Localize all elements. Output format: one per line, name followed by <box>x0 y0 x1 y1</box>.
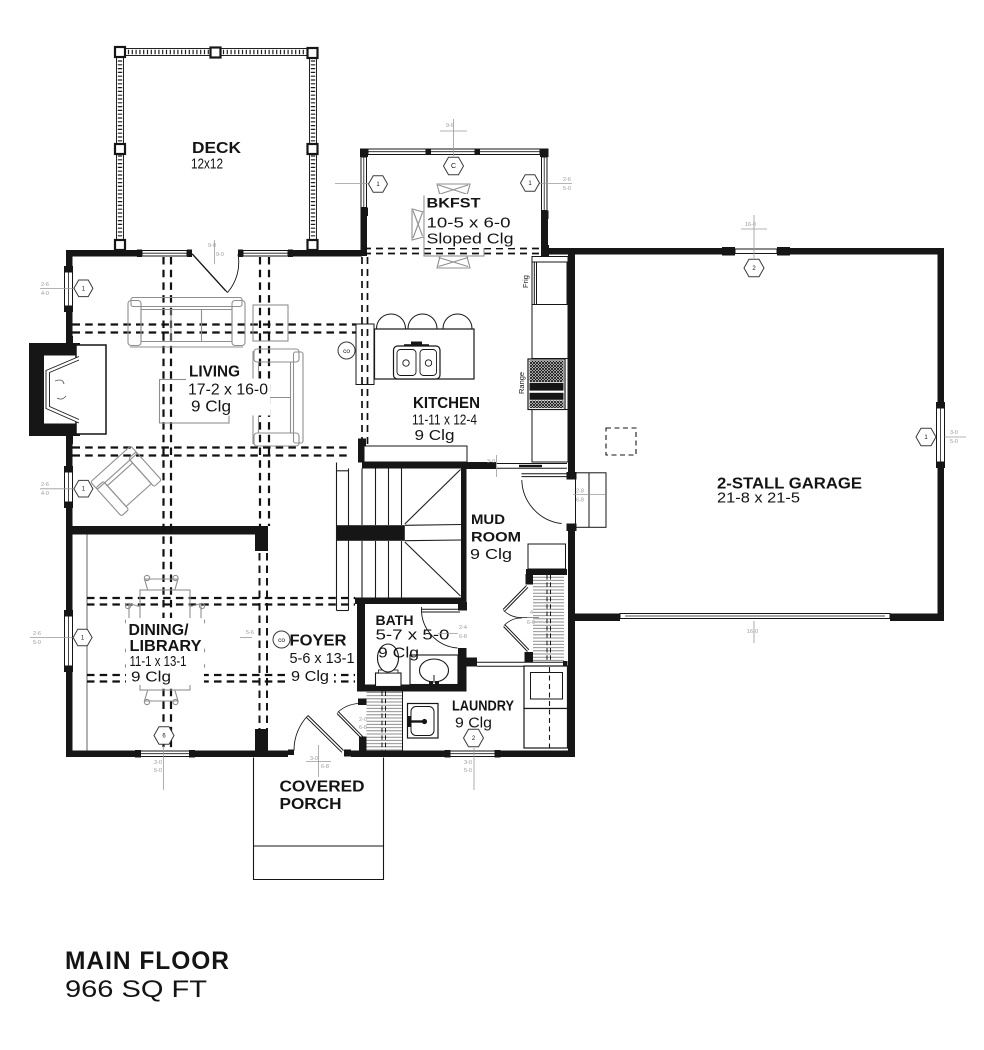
svg-text:9 Clg: 9 Clg <box>191 399 231 416</box>
svg-text:11-1 x 13-1: 11-1 x 13-1 <box>130 653 187 670</box>
svg-text:5-6: 5-6 <box>246 630 254 636</box>
svg-text:6-8: 6-8 <box>576 498 584 504</box>
svg-text:6-8: 6-8 <box>459 634 467 640</box>
svg-text:PORCH: PORCH <box>280 796 342 813</box>
svg-text:9-6: 9-6 <box>446 123 454 129</box>
svg-text:DECK: DECK <box>192 140 241 157</box>
svg-text:5-6 x 13-1: 5-6 x 13-1 <box>290 650 355 667</box>
svg-text:6-0: 6-0 <box>527 620 535 626</box>
svg-text:BKFST: BKFST <box>427 195 482 211</box>
svg-text:3-0: 3-0 <box>154 760 162 766</box>
svg-text:4: 4 <box>530 610 533 616</box>
svg-text:4-0: 4-0 <box>41 491 49 497</box>
svg-text:11-11 x 12-4: 11-11 x 12-4 <box>412 412 477 429</box>
svg-text:9 Clg: 9 Clg <box>415 427 455 444</box>
svg-text:4-0: 4-0 <box>41 291 49 297</box>
svg-text:LIVING: LIVING <box>189 364 240 381</box>
svg-text:ROOM: ROOM <box>471 529 521 545</box>
svg-text:MAIN FLOOR: MAIN FLOOR <box>65 947 230 975</box>
svg-text:17-2 x 16-0: 17-2 x 16-0 <box>188 382 268 399</box>
svg-text:5-0: 5-0 <box>464 768 472 774</box>
svg-text:2-6: 2-6 <box>41 282 49 288</box>
svg-text:2-6: 2-6 <box>563 177 571 183</box>
svg-text:9 Clg: 9 Clg <box>131 669 171 686</box>
svg-text:5-0: 5-0 <box>33 640 41 646</box>
svg-text:Frig: Frig <box>521 275 530 288</box>
svg-text:9-0: 9-0 <box>208 243 216 249</box>
svg-text:2-8: 2-8 <box>576 489 584 495</box>
svg-text:16-0: 16-0 <box>745 222 756 228</box>
svg-text:Sloped Clg: Sloped Clg <box>427 231 514 248</box>
svg-text:9 Clg: 9 Clg <box>378 645 419 662</box>
svg-text:10-5 x 6-0: 10-5 x 6-0 <box>427 215 511 232</box>
svg-text:2-6: 2-6 <box>33 631 41 637</box>
svg-text:C: C <box>451 163 456 170</box>
svg-text:2-6: 2-6 <box>41 482 49 488</box>
svg-text:Range: Range <box>517 372 526 394</box>
svg-text:LAUNDRY: LAUNDRY <box>452 699 514 715</box>
svg-text:3-0: 3-0 <box>310 756 318 762</box>
svg-text:3-0: 3-0 <box>950 430 958 436</box>
svg-text:9 Clg: 9 Clg <box>470 546 512 563</box>
svg-text:KITCHEN: KITCHEN <box>413 395 480 412</box>
svg-text:COVERED: COVERED <box>280 779 365 796</box>
svg-text:16-0: 16-0 <box>747 629 758 635</box>
svg-text:966 SQ FT: 966 SQ FT <box>65 976 207 1003</box>
svg-text:9-0: 9-0 <box>216 252 224 258</box>
svg-text:5-0: 5-0 <box>950 439 958 445</box>
svg-text:21-8 x 21-5: 21-8 x 21-5 <box>717 490 800 507</box>
svg-text:6-8: 6-8 <box>359 725 367 731</box>
svg-text:3-0: 3-0 <box>487 459 495 465</box>
svg-text:3-0: 3-0 <box>464 760 472 766</box>
svg-text:FOYER: FOYER <box>290 633 347 650</box>
svg-text:MUD: MUD <box>471 511 505 527</box>
svg-text:9 Clg: 9 Clg <box>291 668 329 685</box>
svg-text:5-0: 5-0 <box>154 768 162 774</box>
svg-text:DINING/: DINING/ <box>129 622 190 639</box>
svg-text:co: co <box>278 637 285 644</box>
svg-text:2-4: 2-4 <box>459 625 467 631</box>
svg-text:5-0: 5-0 <box>563 186 571 192</box>
svg-text:12x12: 12x12 <box>191 156 223 173</box>
svg-text:co: co <box>343 348 350 355</box>
svg-text:6-8: 6-8 <box>321 764 329 770</box>
svg-text:5-7 x 5-0: 5-7 x 5-0 <box>376 627 450 644</box>
svg-text:2-0: 2-0 <box>359 717 367 723</box>
